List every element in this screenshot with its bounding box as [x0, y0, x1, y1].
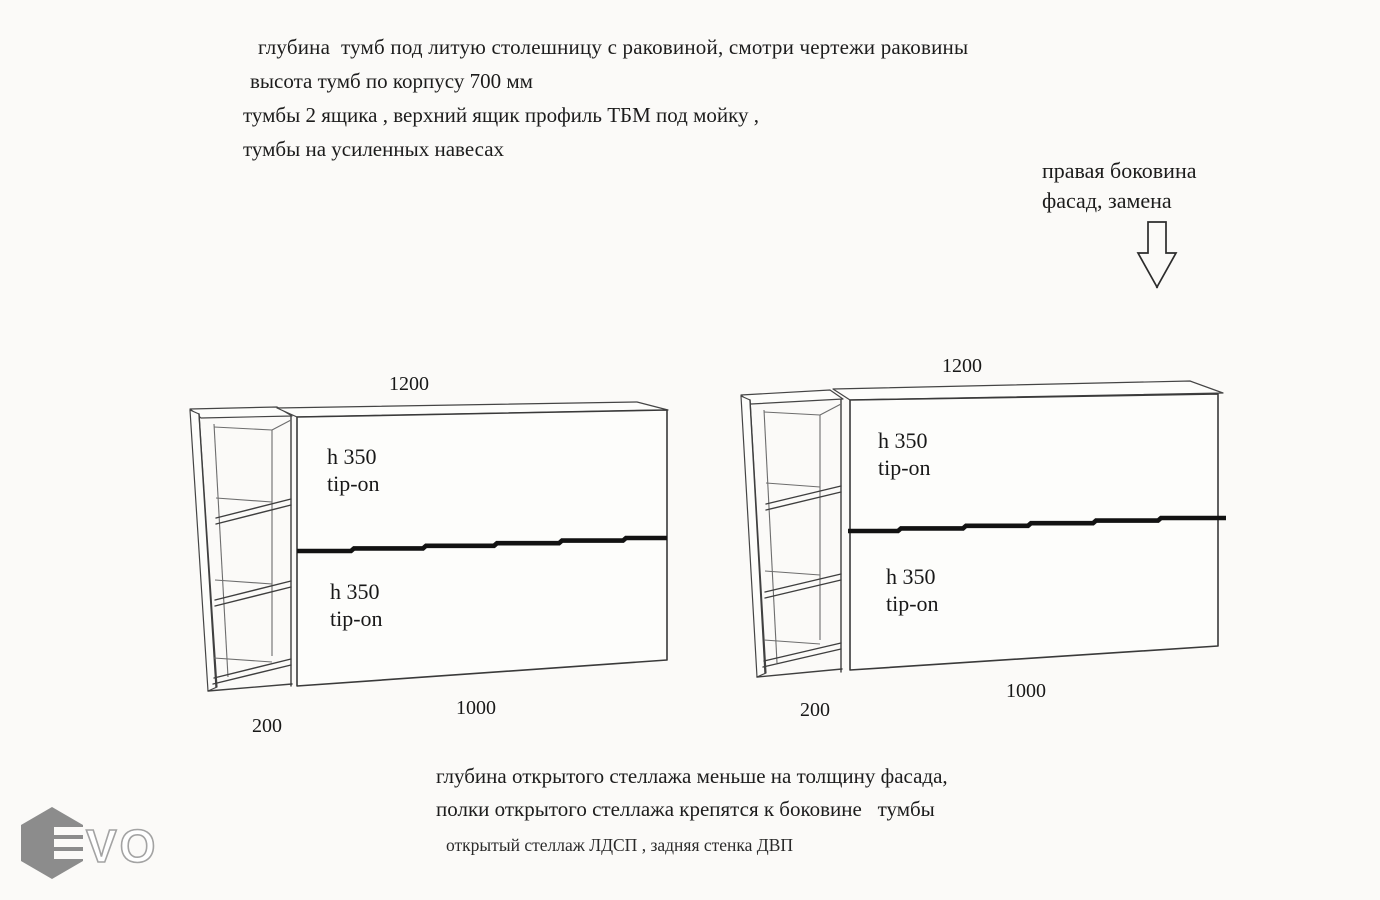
dim-top-width-left: 1200	[389, 373, 429, 395]
down-arrow-icon	[1136, 221, 1180, 291]
callout-line-2: фасад, замена	[1042, 186, 1196, 216]
dim-drawer-width-right: 1000	[1006, 680, 1046, 702]
note-cabinet-depth: глубина тумб под литую столешницу с рако…	[243, 30, 968, 64]
replacement-callout: правая боковина фасад, замена	[1042, 156, 1196, 216]
dim-shelf-width-right: 200	[800, 699, 830, 721]
drawer2-height-right: h 350	[886, 564, 936, 589]
logo-text: VO	[86, 820, 158, 872]
drawer1-mech-left: tip-on	[327, 471, 380, 496]
note-drawers: тумбы 2 ящика , верхний ящик профиль ТБМ…	[243, 98, 968, 132]
logo-e-bars	[54, 827, 85, 859]
drawer1-height-left: h 350	[327, 444, 377, 469]
cabinet-right: 1200 h 350 tip-on h 350 tip-on 1000 200	[741, 355, 1226, 721]
dim-top-width-right: 1200	[942, 355, 982, 377]
drawer-unit-right	[833, 381, 1226, 670]
cabinet-drawing: 1200 h 350 tip-on h 350 tip-on 1000 200	[0, 330, 1380, 760]
drawer2-mech-left: tip-on	[330, 606, 383, 631]
callout-line-1: правая боковина	[1042, 156, 1196, 186]
open-shelf-unit-right	[741, 390, 843, 677]
note-shelf-depth: глубина открытого стеллажа меньше на тол…	[436, 760, 948, 793]
drawer1-mech-right: tip-on	[878, 455, 931, 480]
dim-shelf-width-left: 200	[252, 715, 282, 737]
shelf-notes: глубина открытого стеллажа меньше на тол…	[436, 760, 948, 862]
dim-drawer-width-left: 1000	[456, 697, 496, 719]
note-hangers: тумбы на усиленных навесах	[243, 132, 968, 166]
spec-notes: глубина тумб под литую столешницу с рако…	[243, 30, 968, 166]
cabinet-left: 1200 h 350 tip-on h 350 tip-on 1000 200	[190, 373, 668, 737]
blueprint-page: глубина тумб под литую столешницу с рако…	[0, 0, 1380, 900]
open-shelf-unit-left	[190, 407, 292, 691]
drawer2-height-left: h 350	[330, 579, 380, 604]
drawer1-height-right: h 350	[878, 428, 928, 453]
note-shelf-mounting: полки открытого стеллажа крепятся к боко…	[436, 793, 948, 826]
evo-logo: VO	[16, 802, 196, 894]
note-shelf-material: открытый стеллаж ЛДСП , задняя стенка ДВ…	[436, 829, 948, 862]
note-cabinet-height: высота тумб по корпусу 700 мм	[243, 64, 968, 98]
drawer2-mech-right: tip-on	[886, 591, 939, 616]
